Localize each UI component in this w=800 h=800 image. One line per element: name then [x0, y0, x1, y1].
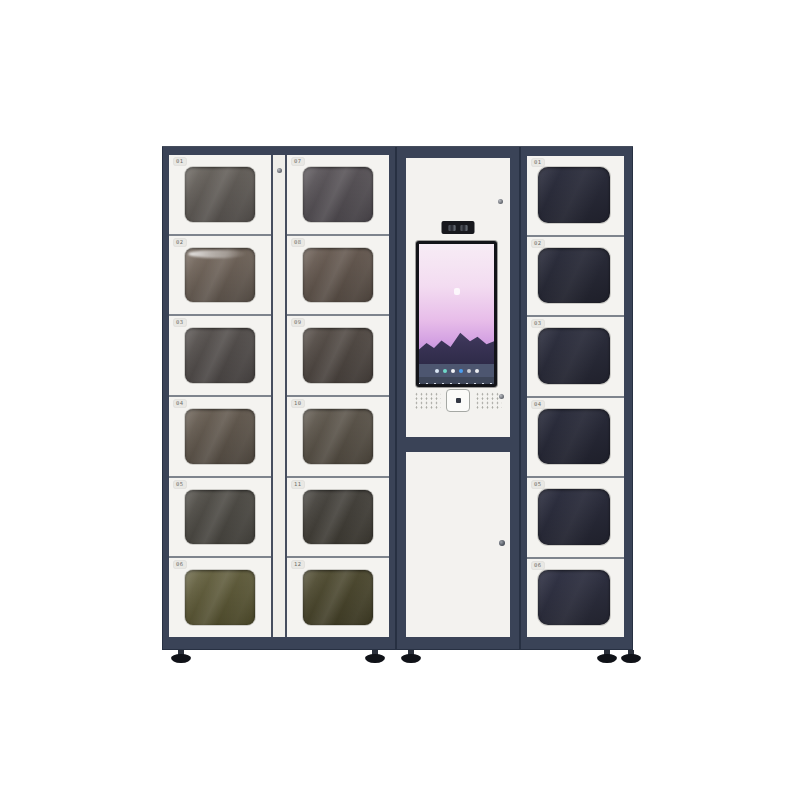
screw-icon: [277, 168, 282, 173]
scanner-lens-icon: [456, 398, 461, 403]
locker-window: [185, 167, 255, 222]
locker-door-a-04[interactable]: 04: [169, 397, 271, 476]
screen-nav-bar[interactable]: [419, 377, 494, 384]
taskbar-app-icon[interactable]: [443, 369, 447, 373]
locker-number-label: 11: [292, 481, 304, 488]
right-cabinet-body: 01 02 03 04 05: [527, 156, 624, 637]
locker-number-label: 04: [532, 401, 544, 408]
left-locker-cabinet: 01 02 03 04 05: [162, 146, 396, 650]
locker-number-label: 03: [532, 320, 544, 327]
wallpaper-mountains: [419, 326, 494, 364]
locker-door-a-05[interactable]: 05: [169, 478, 271, 557]
center-divider-panel: [271, 155, 287, 637]
taskbar-app-icon[interactable]: [467, 369, 471, 373]
locker-door-b-12[interactable]: 12: [287, 558, 389, 637]
locker-number-label: 02: [174, 239, 186, 246]
taskbar-app-icon[interactable]: [435, 369, 439, 373]
locker-door-r-06[interactable]: 06: [527, 559, 624, 638]
locker-door-r-01[interactable]: 01: [527, 156, 624, 235]
screen-taskbar: [419, 364, 494, 377]
keyhole-lock-icon: [499, 540, 505, 546]
left-cabinet-body: 01 02 03 04 05: [169, 155, 389, 637]
locker-number-label: 06: [532, 562, 544, 569]
locker-number-label: 04: [174, 400, 186, 407]
locker-number-label: 12: [292, 561, 304, 568]
locker-window: [303, 167, 373, 222]
locker-window: [303, 248, 373, 303]
locker-number-label: 06: [174, 561, 186, 568]
locker-door-a-03[interactable]: 03: [169, 316, 271, 395]
locker-window: [538, 328, 610, 384]
right-locker-cabinet: 01 02 03 04 05: [520, 146, 633, 650]
locker-number-label: 01: [174, 158, 186, 165]
locker-window: [185, 409, 255, 464]
locker-door-b-10[interactable]: 10: [287, 397, 389, 476]
locker-door-b-08[interactable]: 08: [287, 236, 389, 315]
locker-window: [303, 570, 373, 625]
leveling-foot: [400, 650, 422, 664]
leveling-foot: [170, 650, 192, 664]
locker-number-label: 09: [292, 319, 304, 326]
speaker-grille-right: [475, 392, 502, 409]
locker-window: [538, 489, 610, 545]
locker-door-a-06[interactable]: 06: [169, 558, 271, 637]
taskbar-app-icon[interactable]: [459, 369, 463, 373]
screw-icon: [498, 199, 503, 204]
taskbar-app-icon[interactable]: [451, 369, 455, 373]
camera-sensor-bar: [442, 221, 475, 234]
locker-number-label: 10: [292, 400, 304, 407]
qr-scanner-window[interactable]: [446, 389, 470, 412]
speaker-grille-left: [414, 392, 441, 409]
locker-door-r-04[interactable]: 04: [527, 398, 624, 477]
locker-window: [538, 248, 610, 304]
leveling-foot: [364, 650, 386, 664]
locker-column-right: 01 02 03 04 05: [527, 156, 624, 637]
locker-door-r-05[interactable]: 05: [527, 478, 624, 557]
locker-window: [303, 490, 373, 545]
locker-window: [538, 570, 610, 626]
locker-window: [185, 328, 255, 383]
kiosk-upper-panel: [406, 158, 510, 437]
locker-number-label: 01: [532, 159, 544, 166]
leveling-foot: [620, 650, 642, 664]
locker-number-label: 05: [174, 481, 186, 488]
locker-window: [185, 490, 255, 545]
screw-icon: [499, 394, 504, 399]
locker-window: [303, 328, 373, 383]
locker-door-b-11[interactable]: 11: [287, 478, 389, 557]
locker-number-label: 07: [292, 158, 304, 165]
locker-number-label: 08: [292, 239, 304, 246]
kiosk-service-door[interactable]: [406, 452, 510, 637]
locker-door-r-02[interactable]: 02: [527, 237, 624, 316]
wallpaper-logo-icon: [454, 288, 460, 295]
locker-window: [185, 570, 255, 625]
locker-column-b: 07 08 09 10 11: [287, 155, 389, 637]
locker-door-r-03[interactable]: 03: [527, 317, 624, 396]
locker-number-label: 02: [532, 240, 544, 247]
locker-door-b-09[interactable]: 09: [287, 316, 389, 395]
locker-number-label: 03: [174, 319, 186, 326]
locker-window: [185, 248, 255, 303]
screen-wallpaper: [419, 244, 494, 384]
sensor-lens-icon: [461, 225, 468, 231]
locker-column-a: 01 02 03 04 05: [169, 155, 271, 637]
locker-number-label: 05: [532, 481, 544, 488]
locker-window: [538, 167, 610, 223]
leveling-foot: [596, 650, 618, 664]
taskbar-app-icon[interactable]: [475, 369, 479, 373]
locker-door-b-07[interactable]: 07: [287, 155, 389, 234]
locker-door-a-02[interactable]: 02: [169, 236, 271, 315]
kiosk-touchscreen[interactable]: [416, 241, 497, 387]
locker-door-a-01[interactable]: 01: [169, 155, 271, 234]
locker-window: [303, 409, 373, 464]
locker-window: [538, 409, 610, 465]
product-photo-stage: 01 02 03 04 05: [0, 0, 800, 800]
center-kiosk-unit: [396, 146, 520, 650]
sensor-lens-icon: [449, 225, 456, 231]
